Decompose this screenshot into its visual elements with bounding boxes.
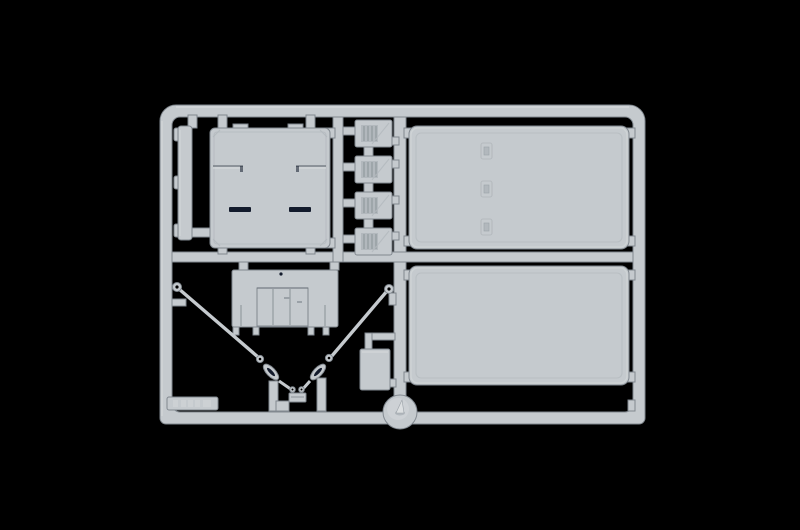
embossed-character xyxy=(203,400,211,407)
dome-part xyxy=(383,395,417,429)
gate-stub xyxy=(389,293,396,305)
shackle-ring-hole xyxy=(292,389,294,391)
ledge-notch xyxy=(296,166,299,172)
embossed-character xyxy=(173,400,178,407)
panel-body xyxy=(409,266,629,385)
door-handle xyxy=(284,297,290,299)
shackle-ring-hole xyxy=(301,389,303,391)
gate-stub xyxy=(330,262,339,270)
eyelet-hole xyxy=(175,285,178,288)
eyelet-hole xyxy=(387,287,390,290)
upper-side-panel-part xyxy=(409,126,629,249)
gate-stub xyxy=(172,299,186,306)
sprue-photo xyxy=(0,0,800,530)
box-body xyxy=(360,349,390,390)
photo-canvas xyxy=(0,0,800,530)
panel-slot xyxy=(289,207,311,212)
hatch-panel-part xyxy=(232,270,338,335)
embossed-character xyxy=(188,400,193,407)
u-channel-right-wall xyxy=(317,378,326,411)
latch-key xyxy=(484,185,489,193)
feed-runner-vertical xyxy=(365,333,372,351)
ledge-notch xyxy=(240,166,243,172)
square-panel-part xyxy=(210,124,330,248)
latch-key xyxy=(484,147,489,155)
gate-stub xyxy=(239,262,248,270)
gate-stub xyxy=(191,228,211,237)
marking-tab xyxy=(167,397,218,410)
latch-key xyxy=(484,223,489,231)
center-horizontal-runner xyxy=(172,252,633,262)
embossed-character xyxy=(181,400,186,407)
gate-stub xyxy=(343,127,356,135)
raised-door-block xyxy=(257,288,308,326)
u-channel-step xyxy=(276,401,289,411)
panel-slot xyxy=(229,207,251,212)
panel-body xyxy=(210,128,330,248)
eyelet-hole xyxy=(328,357,331,360)
lower-side-panel-part xyxy=(409,266,629,385)
embossed-character xyxy=(195,400,200,407)
gate-stub xyxy=(343,235,356,243)
door-handle xyxy=(297,301,302,303)
gate-stub xyxy=(343,163,356,171)
gate-stub xyxy=(628,400,635,411)
panel-body xyxy=(409,126,629,249)
eyelet-hole xyxy=(259,358,262,361)
gate-stub xyxy=(343,199,356,207)
pin-hole xyxy=(279,272,282,275)
